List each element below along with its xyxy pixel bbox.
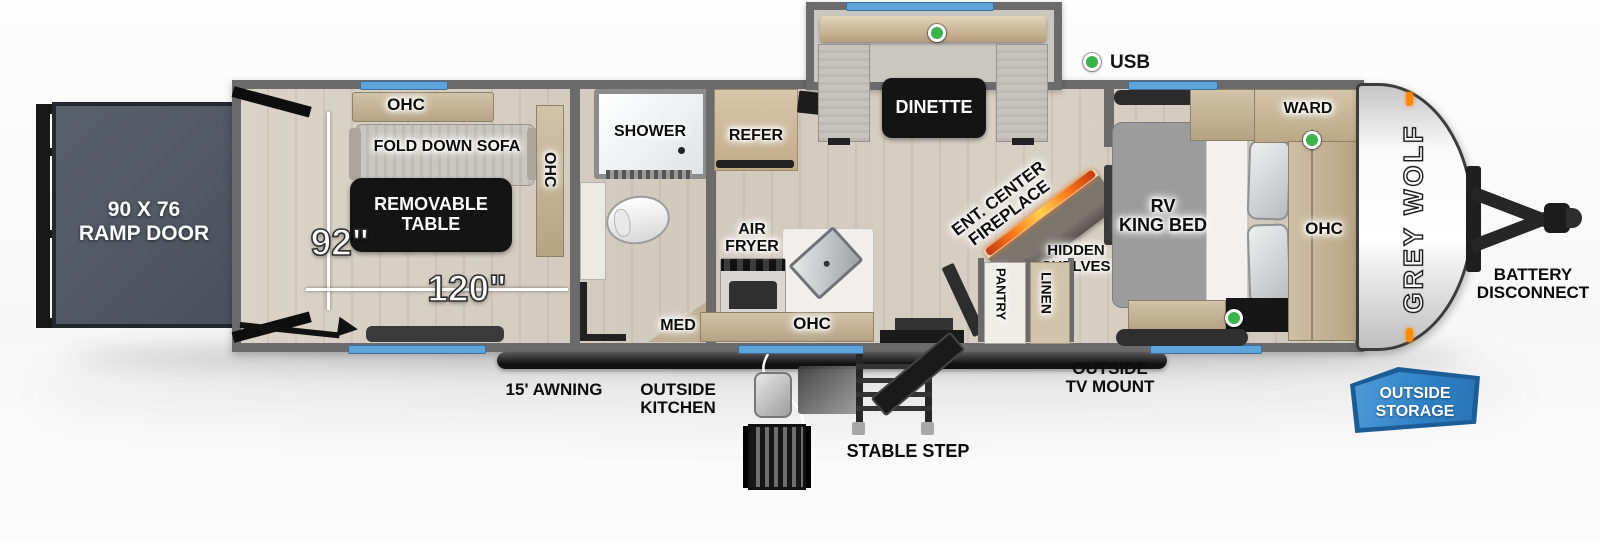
bath-door-frame bbox=[580, 334, 626, 341]
removable-table-label-line1: REMOVABLE bbox=[350, 194, 512, 214]
usb-legend-dot bbox=[1083, 53, 1101, 71]
pantry-label: PANTRY bbox=[994, 268, 1008, 320]
window-kitchen-bottom bbox=[738, 345, 864, 354]
window-dinette-slide bbox=[846, 2, 994, 11]
brand-text-wrap: GREY WOLF bbox=[1392, 112, 1436, 324]
bedroom-side-cabinet bbox=[1288, 141, 1360, 341]
fold-down-sofa-label: FOLD DOWN SOFA bbox=[367, 139, 527, 156]
grill-handle-right bbox=[806, 426, 811, 488]
brand-grey-wolf: GREY WOLF bbox=[1399, 123, 1430, 313]
outside-storage-line2: STORAGE bbox=[1350, 403, 1480, 421]
marker-light-bottom bbox=[1406, 328, 1413, 342]
stable-step-label: STABLE STEP bbox=[840, 442, 976, 461]
ramp-door: 90 X 76 RAMP DOOR bbox=[52, 102, 236, 328]
air-fryer-label: AIR FRYER bbox=[712, 222, 792, 256]
outside-tv-mount-label: OUTSIDE TV MOUNT bbox=[1048, 360, 1172, 396]
outside-tv-mount-bar bbox=[1116, 329, 1248, 346]
dinette-bench-right bbox=[996, 44, 1048, 142]
sofa-armrest-left bbox=[349, 128, 361, 180]
dinette-bench-left bbox=[818, 44, 870, 142]
rear-bumper-rail bbox=[36, 104, 50, 328]
dinette-bench-foot bbox=[1012, 138, 1034, 145]
step-foot-left bbox=[852, 422, 865, 435]
outside-storage-line1: OUTSIDE bbox=[1350, 385, 1480, 403]
dinette-bench-foot bbox=[828, 138, 850, 145]
dinette-label: DINETTE bbox=[882, 97, 986, 117]
stove bbox=[720, 258, 786, 318]
oven-front bbox=[729, 281, 777, 309]
dinette-label-box: DINETTE bbox=[882, 78, 986, 138]
ramp-door-label-line1: 90 X 76 bbox=[56, 198, 232, 222]
window-bedroom-top bbox=[1128, 81, 1218, 90]
shower-label: SHOWER bbox=[600, 124, 700, 141]
marker-light-top bbox=[1406, 92, 1413, 106]
grill-handle-left bbox=[743, 426, 748, 488]
outdoor-grill bbox=[748, 424, 806, 490]
garage-ohc-side-label: OHC bbox=[540, 152, 557, 188]
bed-pillow-top bbox=[1247, 139, 1292, 220]
usb-dot-ward bbox=[1303, 131, 1321, 149]
hitch-crossmember bbox=[1466, 166, 1481, 272]
wall-garage-bath bbox=[570, 89, 580, 343]
battery-disconnect-label: BATTERY DISCONNECT bbox=[1466, 266, 1600, 302]
floorplan-canvas: 90 X 76 RAMP DOOR OHC FOLD DOWN SOFA REM… bbox=[0, 0, 1600, 542]
bed-foot-bench bbox=[1128, 300, 1226, 330]
bedroom-ohc-label: OHC bbox=[1296, 220, 1352, 238]
med-label: MED bbox=[648, 318, 708, 335]
bath-cabinet bbox=[580, 182, 606, 280]
entry-step bbox=[895, 318, 953, 330]
ramp-door-label-line2: RAMP DOOR bbox=[56, 222, 232, 246]
ramp-swing-arrow-head bbox=[337, 317, 360, 340]
usb-dot-dinette bbox=[928, 24, 946, 42]
awning-label: 15' AWNING bbox=[498, 381, 610, 399]
usb-legend-label: USB bbox=[1110, 52, 1150, 74]
refer-label: REFER bbox=[716, 128, 796, 145]
garage-rear-bench bbox=[366, 326, 504, 342]
step-rail-left bbox=[856, 352, 863, 424]
shower-drain bbox=[678, 147, 685, 154]
linen-label: LINEN bbox=[1039, 272, 1054, 314]
step-foot-right bbox=[921, 422, 934, 435]
bed-overhead-cabinet bbox=[1190, 89, 1256, 141]
hitch-tip bbox=[1566, 208, 1582, 228]
dim-line-vertical bbox=[327, 112, 330, 310]
dim-120-label: 120" bbox=[412, 268, 522, 310]
refrigerator-handle bbox=[716, 160, 794, 168]
garage-ohc-top-label: OHC bbox=[376, 96, 436, 114]
bath-door-leaf bbox=[580, 282, 587, 340]
bed-runner bbox=[1206, 122, 1248, 308]
burner-strip bbox=[721, 259, 785, 271]
window-garage-top bbox=[360, 81, 448, 90]
shower-grate bbox=[606, 170, 692, 179]
rv-king-bed-label: RV KING BED bbox=[1118, 197, 1208, 235]
outdoor-sink bbox=[754, 372, 792, 418]
ward-label: WARD bbox=[1276, 101, 1340, 118]
bed-pillow-bottom bbox=[1247, 223, 1292, 304]
window-bedroom-bottom bbox=[1150, 345, 1262, 354]
window-garage-bottom bbox=[348, 345, 486, 354]
outside-kitchen-label: OUTSIDE KITCHEN bbox=[622, 381, 734, 417]
hitch-frame-lower bbox=[1470, 211, 1551, 253]
outdoor-griddle bbox=[798, 366, 860, 414]
usb-dot-bed bbox=[1225, 309, 1243, 327]
kitchen-ohc-label: OHC bbox=[782, 315, 842, 333]
dim-92-label: 92" bbox=[298, 222, 382, 264]
